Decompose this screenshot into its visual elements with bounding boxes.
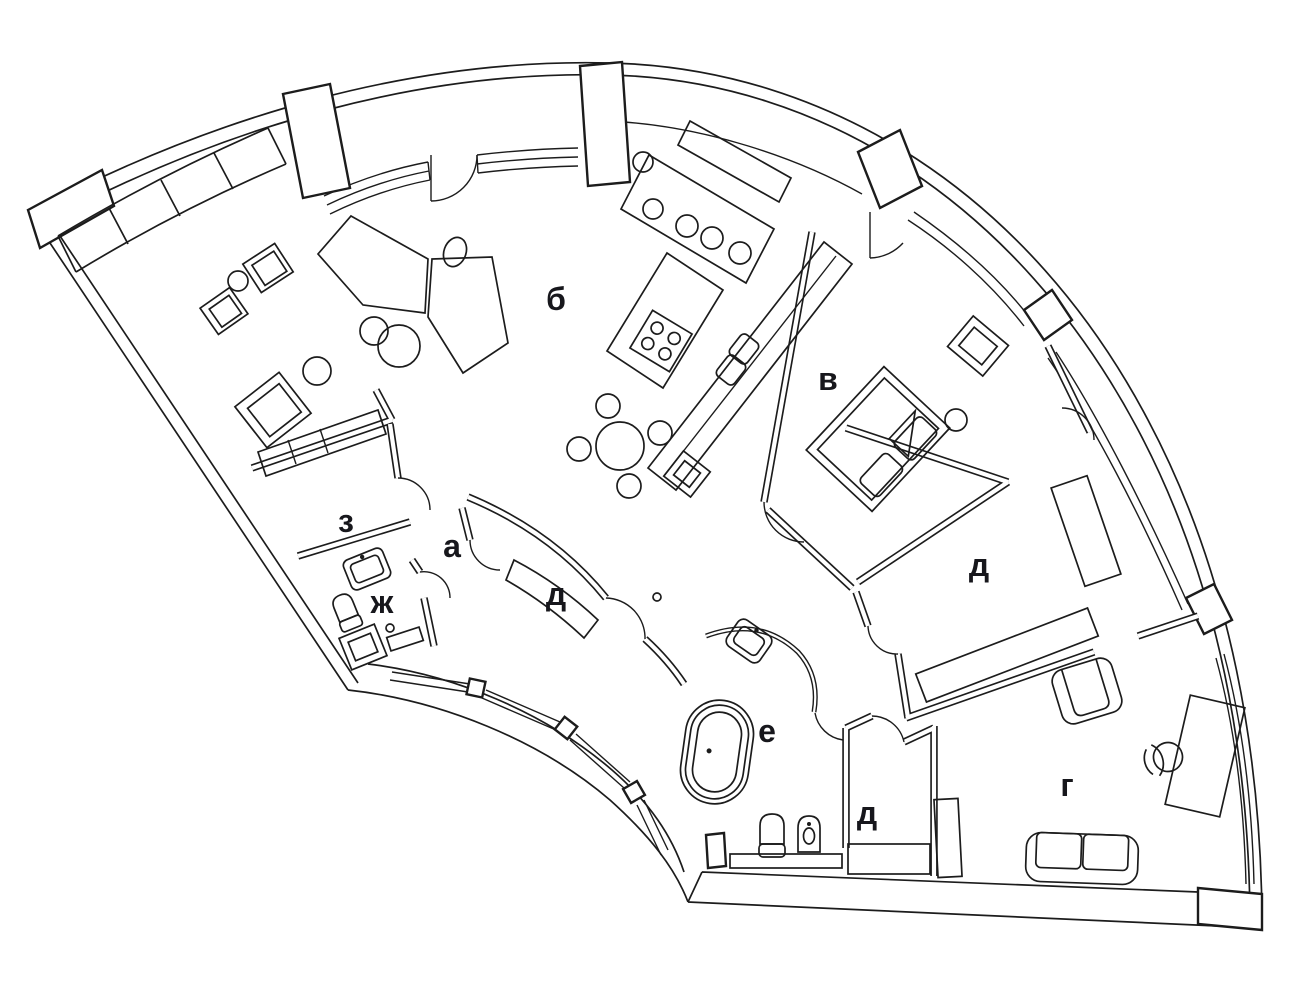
room-label-d-bedroom: д: [969, 547, 989, 583]
bottom-exterior-wall: [688, 872, 1262, 928]
armchair-3: [235, 372, 311, 447]
door-room-d-small: [872, 716, 904, 742]
facade-piers: [28, 62, 1262, 930]
kitchen-island: [607, 253, 723, 388]
pier-east-lower: [1186, 584, 1232, 634]
side-table-oval: [440, 234, 471, 270]
door-wc-zh: [420, 572, 450, 598]
cabinet-d: [916, 608, 1099, 702]
door-bathroom-e: [815, 713, 843, 740]
wardrobe-d: [1051, 476, 1121, 587]
side-table-1: [228, 271, 248, 291]
hall-fitting: [653, 593, 661, 601]
door-room-d-east: [868, 626, 898, 654]
furniture-layer: [200, 121, 1245, 885]
breakfast-table: [567, 394, 672, 498]
room-label-g: г: [1060, 767, 1073, 803]
side-table-2: [303, 357, 331, 385]
counter-end-unit: [664, 451, 710, 497]
armchair-1: [243, 243, 293, 292]
pier-west: [283, 84, 350, 198]
bench-d-small: [848, 844, 930, 874]
armchair-2: [200, 288, 248, 335]
door-balcony-top: [431, 155, 477, 201]
kitchen-sink-1: [714, 353, 747, 387]
door-balcony-v: [870, 212, 903, 258]
sofa-pentagon-left: [318, 216, 428, 313]
room-label-v: в: [818, 361, 838, 397]
cooktop-icon: [630, 310, 692, 371]
toilet-icon: [759, 814, 785, 857]
pier-northeast: [858, 130, 922, 208]
door-closet-v: [1062, 408, 1094, 440]
facade-window-lines: [324, 122, 1254, 884]
room-label-a: а: [443, 528, 461, 564]
sofa-g: [1025, 832, 1139, 885]
room-label-zh: ж: [370, 584, 394, 620]
bath-cabinet: [730, 854, 842, 868]
door-hall-entry: [470, 540, 500, 570]
labels-layer: б в з а ж д д е д г: [338, 281, 1074, 831]
room-label-d-small: д: [857, 795, 877, 831]
pier-top-left: [28, 170, 114, 248]
room-label-z: з: [338, 503, 354, 539]
wardrobe-d-small: [934, 798, 962, 877]
room-label-e: е: [758, 713, 776, 749]
inner-arc-inner: [368, 664, 684, 872]
bidet-icon: [798, 816, 820, 852]
pier-bottom-right: [1198, 888, 1262, 930]
sofa-pentagon-right: [428, 257, 508, 373]
bathtub-icon: [676, 696, 758, 808]
pier-bath-junction: [706, 833, 726, 868]
wc-fitting: [386, 624, 394, 632]
wc-toilet-icon: [329, 591, 363, 633]
coffee-table-large: [378, 325, 420, 367]
dining-chairs: [633, 152, 751, 264]
door-hall: [606, 598, 645, 639]
door-room-z: [398, 478, 430, 510]
inner-band-windows: [390, 672, 668, 855]
room-label-b: б: [546, 281, 566, 317]
bathroom-sink-icon: [723, 616, 774, 665]
facade-layer: [28, 62, 1262, 930]
floor-plan-drawing: б в з а ж д д е д г: [0, 0, 1294, 984]
pier-top: [580, 62, 630, 186]
dining-table: [621, 155, 774, 283]
pier-east-upper: [1024, 290, 1072, 340]
bedroom-chair: [948, 316, 1009, 376]
room-label-d-hall: д: [546, 576, 566, 612]
kitchen-counter-inner: [664, 256, 836, 476]
console-table: [678, 121, 791, 202]
facade-outer-arc: [30, 63, 1262, 928]
floor-plan-canvas: б в з а ж д д е д г: [0, 0, 1294, 984]
bedside-table: [945, 409, 967, 431]
